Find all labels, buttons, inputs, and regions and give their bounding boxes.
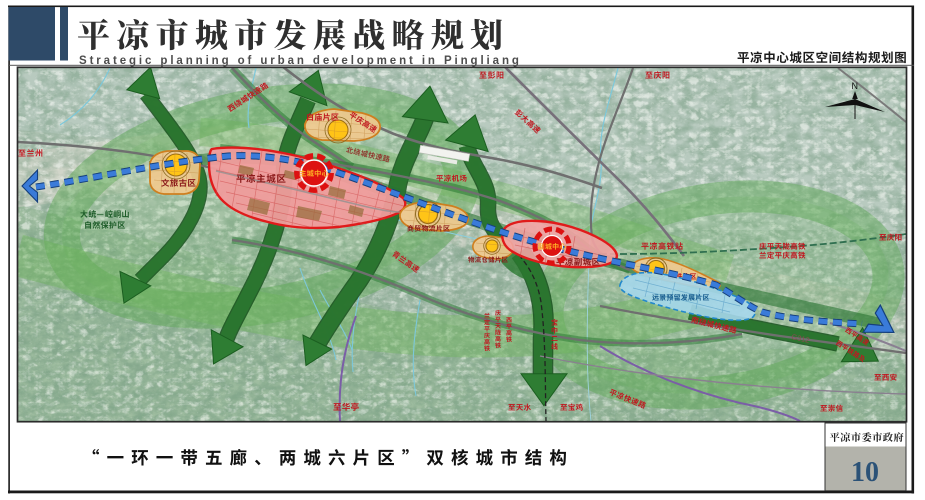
svg-text:10: 10: [851, 457, 879, 488]
svg-text:N: N: [852, 81, 859, 91]
